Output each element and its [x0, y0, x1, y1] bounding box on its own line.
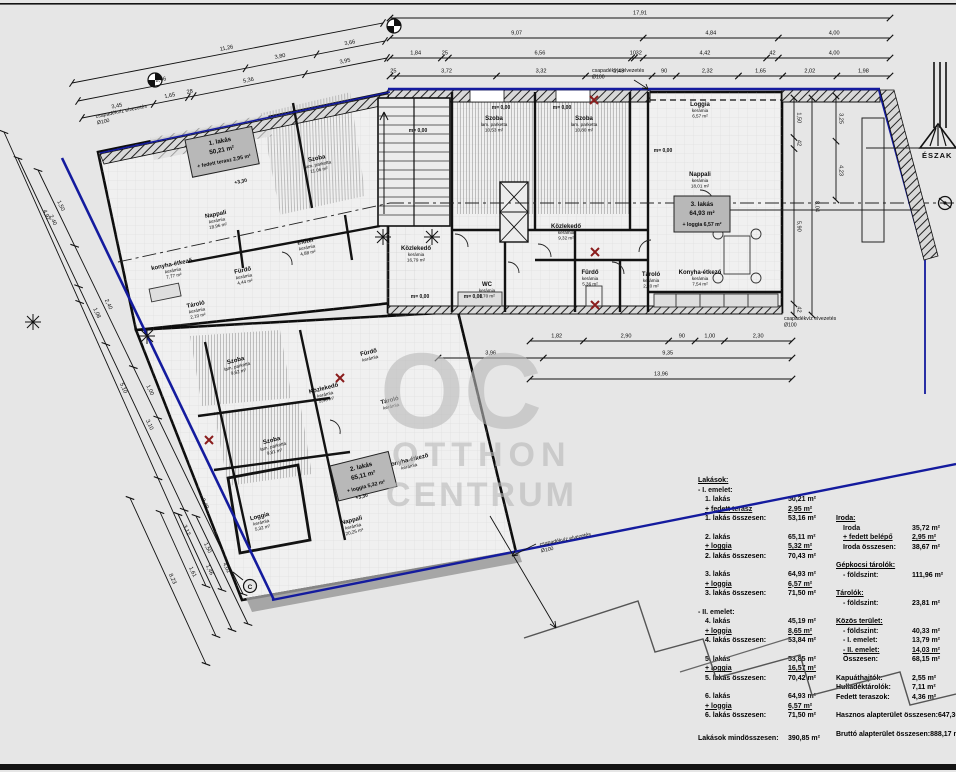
table-row-label: Fedett teraszok: [836, 693, 912, 703]
table-row: 5. lakás53,85 m² [698, 655, 836, 665]
table-row-value: 23,81 m² [912, 599, 956, 609]
table-row-label: 2. lakás összesen: [698, 552, 788, 562]
table-row-label: - földszint: [836, 599, 912, 609]
table-row: 3. lakás64,93 m² [698, 570, 836, 580]
table-row-value: 65,11 m² [788, 533, 836, 543]
table-row-label: 1. lakás összesen: [698, 514, 788, 524]
table-row-value: 53,16 m² [788, 514, 836, 524]
table-row: + loggia16,57 m² [698, 664, 836, 674]
table-row-label: 1. lakás [698, 495, 788, 505]
table-row: + loggia6,57 m² [698, 580, 836, 590]
table-row-label: Összesen: [836, 655, 912, 665]
table-row: 6. lakás64,93 m² [698, 692, 836, 702]
table-row-label: Iroda összesen: [836, 543, 912, 553]
area-table: Lakások:- I. emelet:1. lakás50,21 m²+ fe… [0, 0, 956, 772]
table-row-label: 5. lakás [698, 655, 788, 665]
table-row-value: 38,67 m² [912, 543, 956, 553]
table-row-label: 3. lakás összesen: [698, 589, 788, 599]
table-row-value: 2,95 m² [788, 505, 836, 515]
table-row-label: 5. lakás összesen: [698, 674, 788, 684]
table-row: Lakások: [698, 476, 836, 486]
table-row-value: 888,17 m² [930, 730, 956, 740]
table-row-label: + loggia [698, 627, 788, 637]
table-row-label: 4. lakás [698, 617, 788, 627]
table-row-label: 6. lakás összesen: [698, 711, 788, 721]
table-row-label: - II. emelet: [836, 646, 912, 656]
table-row: 3. lakás összesen:71,50 m² [698, 589, 836, 599]
table-row-value: 7,11 m² [912, 683, 956, 693]
table-row: 1. lakás50,21 m² [698, 495, 836, 505]
table-row-value: 13,79 m² [912, 636, 956, 646]
table-row-value: 6,57 m² [788, 702, 836, 712]
table-row-value: 390,85 m² [788, 734, 836, 744]
table-row-label: + loggia [698, 580, 788, 590]
table-row-value: 647,36 m² [938, 711, 956, 721]
table-row-label: + loggia [698, 542, 788, 552]
table-row-label: Hulladéktárolók: [836, 683, 912, 693]
table-row: 4. lakás45,19 m² [698, 617, 836, 627]
table-row-label: + fedett terasz [698, 505, 788, 515]
floor-plan-page: Lakások:- I. emelet:1. lakás50,21 m²+ fe… [0, 0, 956, 772]
table-row-value: 14,03 m² [912, 646, 956, 656]
table-row-label: Lakások mindösszesen: [698, 734, 788, 744]
table-row: Iroda: [836, 514, 956, 524]
table-row-value: 16,57 m² [788, 664, 836, 674]
table-row-label: Közös terület: [836, 617, 912, 627]
table-row: 5. lakás összesen:70,42 m² [698, 674, 836, 684]
table-row-label: Lakások: [698, 476, 788, 486]
area-table-apartments-column: Lakások:- I. emelet:1. lakás50,21 m²+ fe… [698, 476, 836, 743]
table-row: 6. lakás összesen:71,50 m² [698, 711, 836, 721]
table-row-value: 5,32 m² [788, 542, 836, 552]
table-row: Iroda35,72 m² [836, 524, 956, 534]
table-row-label: - I. emelet: [836, 636, 912, 646]
table-row-label: 3. lakás [698, 570, 788, 580]
table-row: - II. emelet: [698, 608, 836, 618]
table-row-value: 45,19 m² [788, 617, 836, 627]
table-row-value: 50,21 m² [788, 495, 836, 505]
table-row: Fedett teraszok:4,36 m² [836, 693, 956, 703]
table-row-label: - II. emelet: [698, 608, 788, 618]
table-row-value: 64,93 m² [788, 692, 836, 702]
table-row-label: 6. lakás [698, 692, 788, 702]
table-row: Hasznos alapterület összesen:647,36 m² [836, 711, 956, 721]
table-row: 2. lakás65,11 m² [698, 533, 836, 543]
table-row-label: Hasznos alapterület összesen: [836, 711, 938, 721]
table-row-label: - földszint: [836, 627, 912, 637]
table-row-value: 6,57 m² [788, 580, 836, 590]
table-row-value: 4,36 m² [912, 693, 956, 703]
table-row-value: 8,65 m² [788, 627, 836, 637]
table-row: - II. emelet:14,03 m² [836, 646, 956, 656]
table-row-value: 2,55 m² [912, 674, 956, 684]
table-row: Lakások mindösszesen:390,85 m² [698, 734, 836, 744]
table-row-value: 70,43 m² [788, 552, 836, 562]
table-row-value: 53,85 m² [788, 655, 836, 665]
table-row: Összesen:68,15 m² [836, 655, 956, 665]
table-row-label: Kapuáthajtók: [836, 674, 912, 684]
table-row: Hulladéktárolók:7,11 m² [836, 683, 956, 693]
table-row-label: Bruttó alapterület összesen: [836, 730, 930, 740]
table-row-label: + fedett belépő [836, 533, 912, 543]
table-row-label: - földszint: [836, 571, 912, 581]
table-row: 2. lakás összesen:70,43 m² [698, 552, 836, 562]
table-row: + loggia6,57 m² [698, 702, 836, 712]
table-row: - földszint:23,81 m² [836, 599, 956, 609]
table-row-label: 4. lakás összesen: [698, 636, 788, 646]
table-row-value: 70,42 m² [788, 674, 836, 684]
table-row: - I. emelet: [698, 486, 836, 496]
area-table-other-column: Iroda:Iroda35,72 m²+ fedett belépő2,95 m… [836, 514, 956, 739]
table-row-value: 53,84 m² [788, 636, 836, 646]
table-row-value: 111,96 m² [912, 571, 956, 581]
table-row-value: 71,50 m² [788, 711, 836, 721]
table-row: 4. lakás összesen:53,84 m² [698, 636, 836, 646]
table-row: + fedett terasz2,95 m² [698, 505, 836, 515]
table-row: Kapuáthajtók:2,55 m² [836, 674, 956, 684]
table-row-value: 40,33 m² [912, 627, 956, 637]
table-row-label: 2. lakás [698, 533, 788, 543]
table-row: - földszint:111,96 m² [836, 571, 956, 581]
table-row: - földszint:40,33 m² [836, 627, 956, 637]
table-row: Közös terület: [836, 617, 956, 627]
table-row-label: + loggia [698, 664, 788, 674]
table-row: - I. emelet:13,79 m² [836, 636, 956, 646]
table-row-value: 2,95 m² [912, 533, 956, 543]
table-row: Bruttó alapterület összesen:888,17 m² [836, 730, 956, 740]
table-row-value: 64,93 m² [788, 570, 836, 580]
table-row: Tárolók: [836, 589, 956, 599]
table-row-label: Tárolók: [836, 589, 912, 599]
table-row-label: Iroda: [836, 514, 912, 524]
table-row: Gépkocsi tárolók: [836, 561, 956, 571]
table-row-value: 71,50 m² [788, 589, 836, 599]
table-row: + fedett belépő2,95 m² [836, 533, 956, 543]
table-row: + loggia8,65 m² [698, 627, 836, 637]
table-row: 1. lakás összesen:53,16 m² [698, 514, 836, 524]
table-row-label: - I. emelet: [698, 486, 788, 496]
table-row-value: 68,15 m² [912, 655, 956, 665]
table-row: Iroda összesen:38,67 m² [836, 543, 956, 553]
table-row-label: Iroda [836, 524, 912, 534]
table-row: + loggia5,32 m² [698, 542, 836, 552]
table-row-label: Gépkocsi tárolók: [836, 561, 912, 571]
table-row-label: + loggia [698, 702, 788, 712]
table-row-value: 35,72 m² [912, 524, 956, 534]
